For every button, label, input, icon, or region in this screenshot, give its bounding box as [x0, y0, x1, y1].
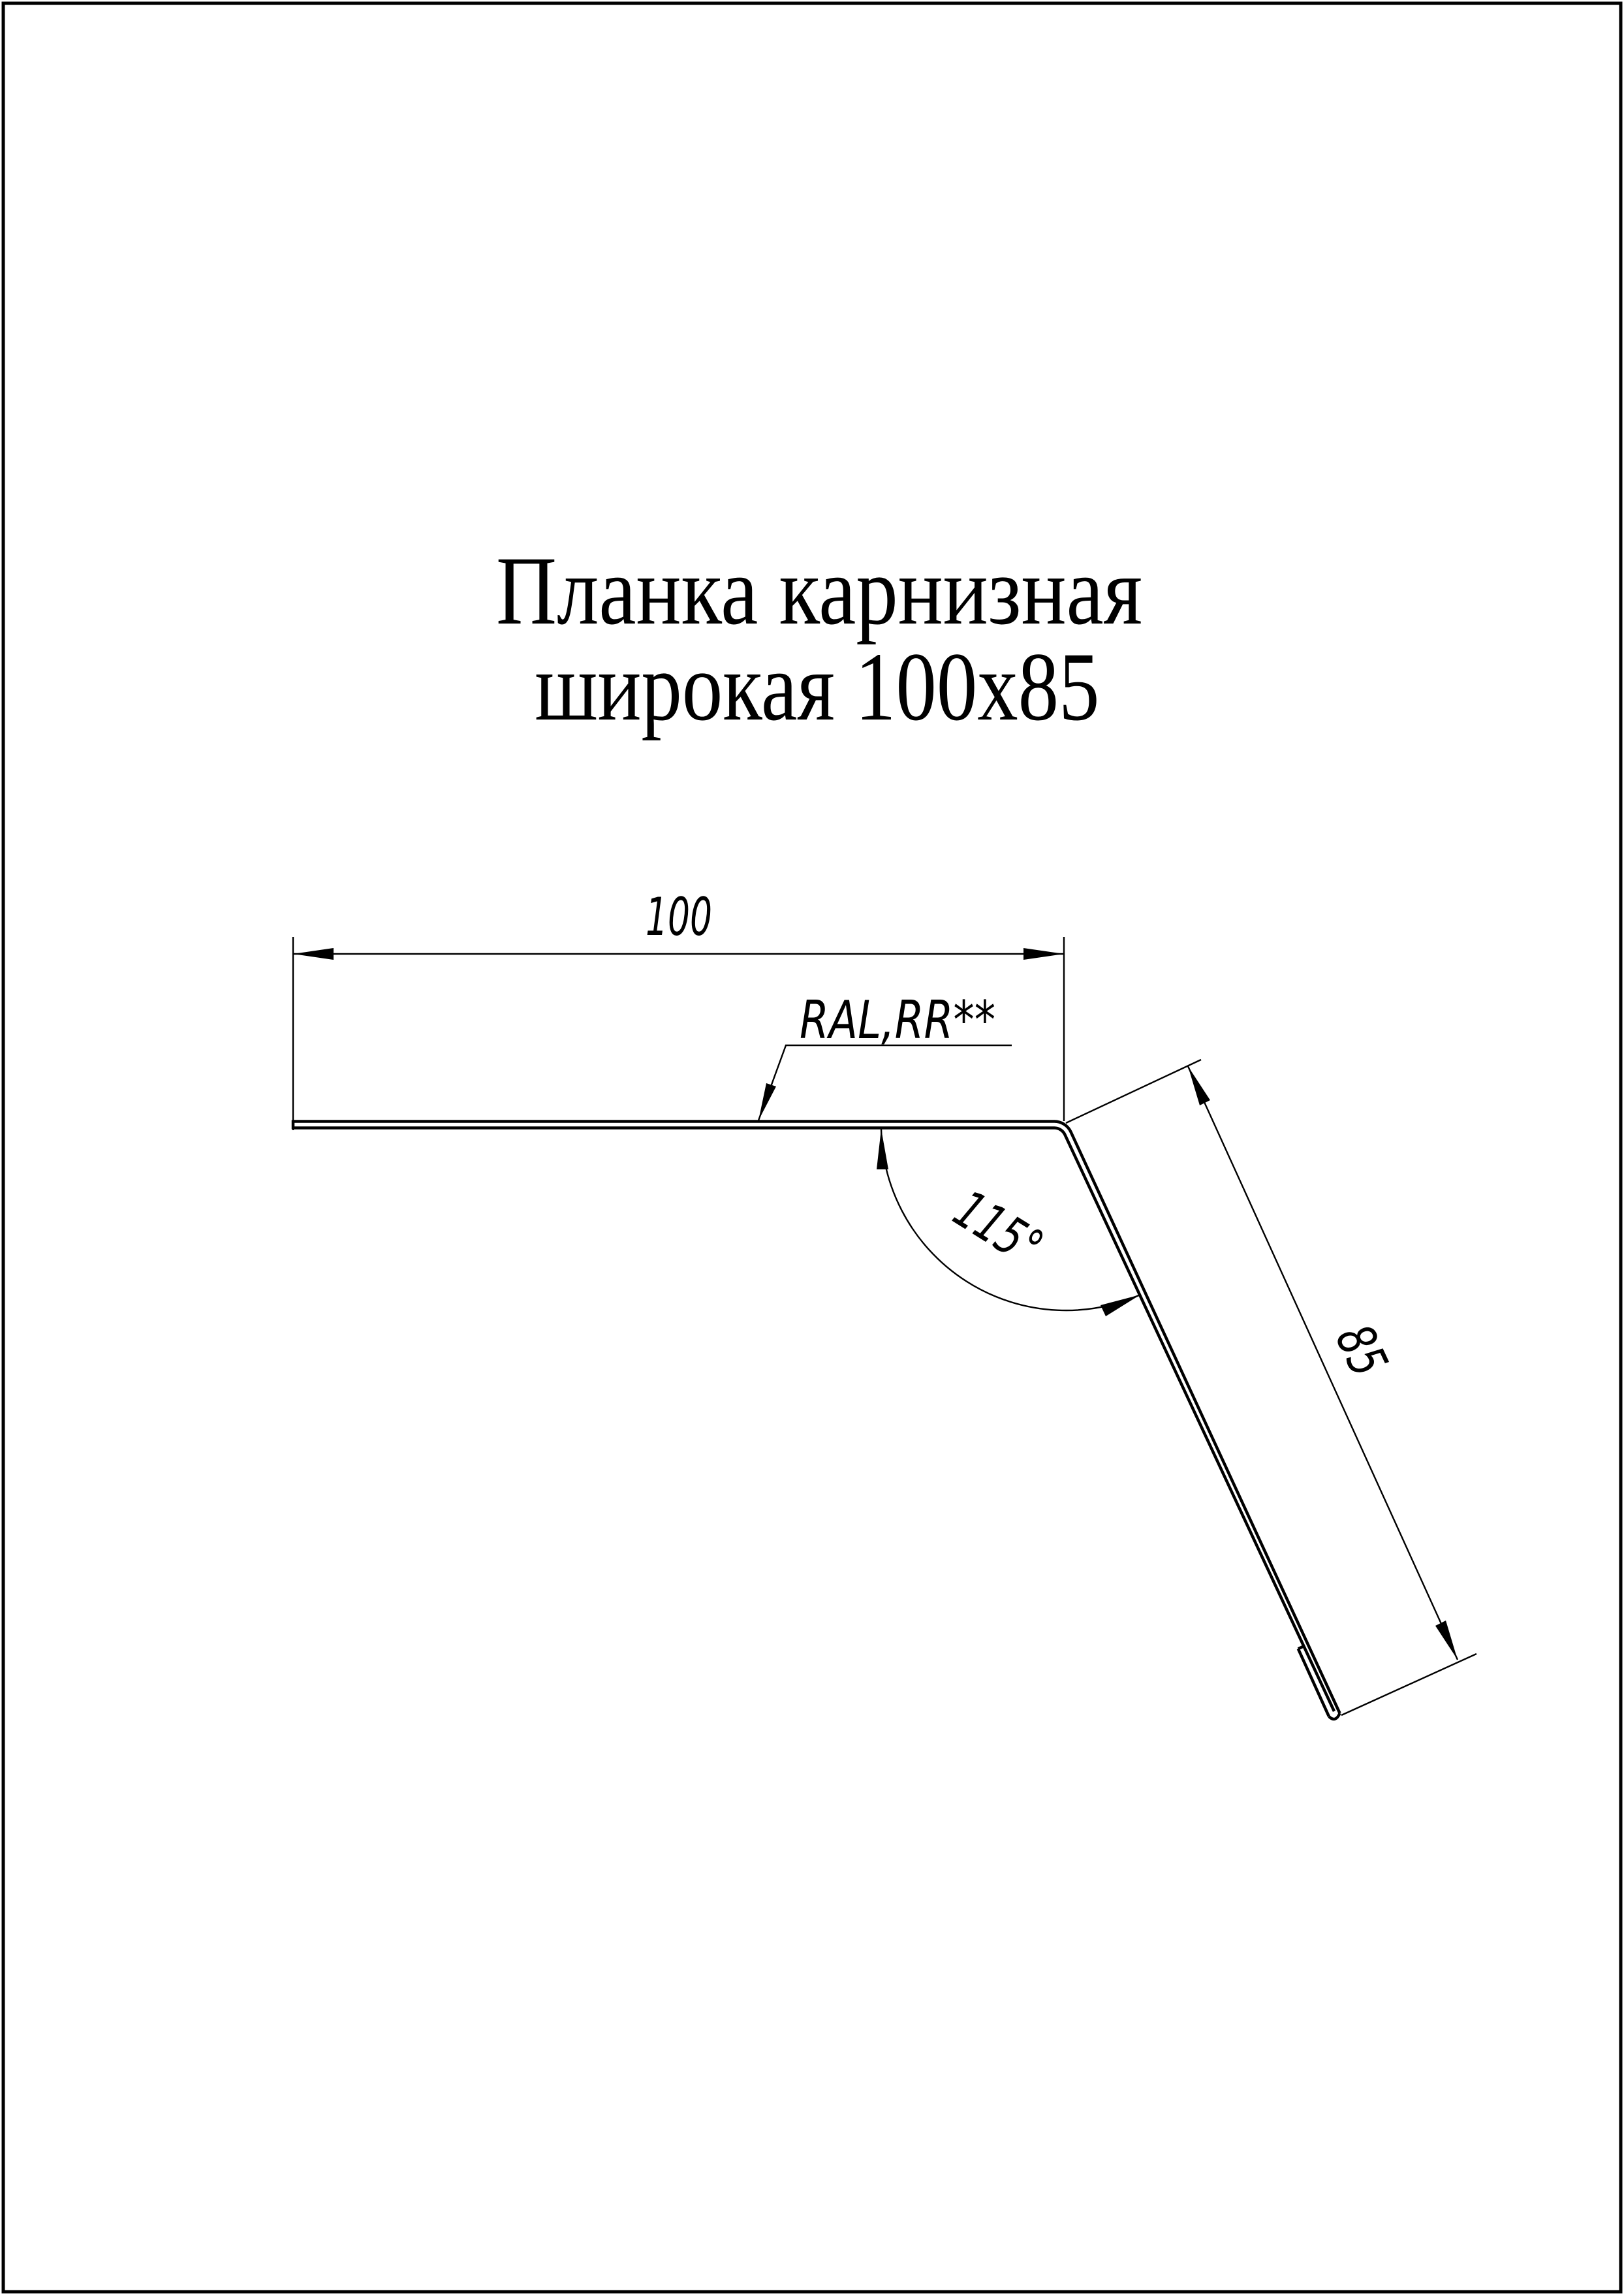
coating-leader-line — [758, 1045, 1012, 1120]
width-dimension-label: 100 — [646, 887, 712, 947]
dimension-height: 85 — [1066, 1060, 1476, 1715]
coating-label: RAL,RR** — [800, 990, 995, 1051]
height-dimension-line — [1188, 1066, 1458, 1660]
title-line-2: широкая 100х85 — [535, 633, 1100, 741]
plank-hem-bend — [1329, 1713, 1340, 1719]
drawing-title: Планка карнизная широкая 100х85 — [496, 537, 1142, 741]
coating-leader-arrow — [758, 1083, 776, 1120]
angle-dimension-label: 115° — [944, 1179, 1054, 1278]
plank-hem-joint — [1298, 1647, 1304, 1649]
coating-leader: RAL,RR** — [758, 990, 1012, 1120]
width-arrow-left — [293, 948, 334, 960]
dimension-angle: 115° — [877, 1129, 1140, 1316]
height-dimension-label: 85 — [1324, 1316, 1399, 1385]
plank-inner-surface — [293, 1128, 1334, 1711]
width-arrow-right — [1023, 948, 1064, 960]
height-extension-line-bottom — [1341, 1654, 1476, 1715]
plank-profile — [293, 1120, 1340, 1720]
angle-arrow-top — [877, 1129, 888, 1169]
title-line-1: Планка карнизная — [496, 537, 1142, 645]
angle-arrow-bottom — [1101, 1295, 1140, 1316]
plank-outer-surface — [293, 1122, 1340, 1714]
height-arrow-bottom — [1435, 1621, 1458, 1660]
technical-drawing: Планка карнизная широкая 100х85 100 — [0, 0, 1624, 2295]
height-extension-line-top — [1066, 1060, 1201, 1123]
page-border — [3, 3, 1621, 2292]
drawing-sheet: Планка карнизная широкая 100х85 100 — [0, 0, 1624, 2295]
height-arrow-top — [1188, 1066, 1210, 1105]
